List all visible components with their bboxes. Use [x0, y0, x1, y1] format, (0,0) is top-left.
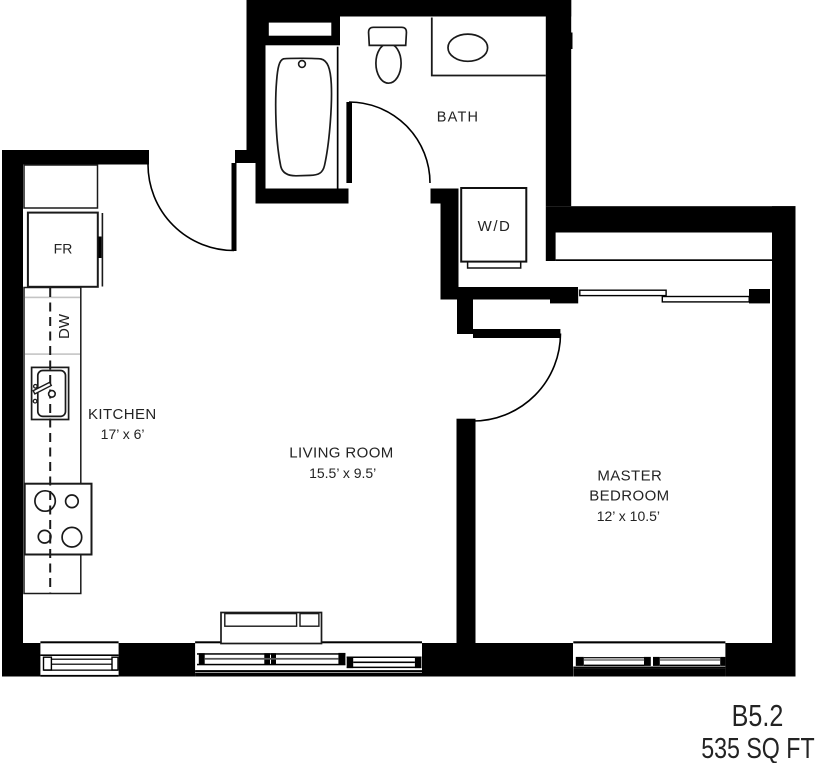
svg-text:DW: DW	[56, 313, 73, 339]
svg-text:W/D: W/D	[478, 218, 512, 235]
svg-text:LIVING ROOM: LIVING ROOM	[289, 444, 393, 461]
svg-text:12’ x 10.5’: 12’ x 10.5’	[597, 508, 660, 524]
svg-text:17’ x 6’: 17’ x 6’	[101, 426, 145, 442]
svg-text:BEDROOM: BEDROOM	[589, 488, 669, 505]
svg-text:15.5’ x 9.5’: 15.5’ x 9.5’	[309, 465, 376, 481]
svg-text:BATH: BATH	[437, 110, 479, 126]
svg-text:B5.2: B5.2	[732, 697, 784, 732]
svg-text:FR: FR	[54, 241, 73, 257]
svg-text:MASTER: MASTER	[597, 468, 662, 485]
svg-text:KITCHEN: KITCHEN	[88, 406, 157, 423]
svg-text:535 SQ FT: 535 SQ FT	[701, 731, 814, 763]
